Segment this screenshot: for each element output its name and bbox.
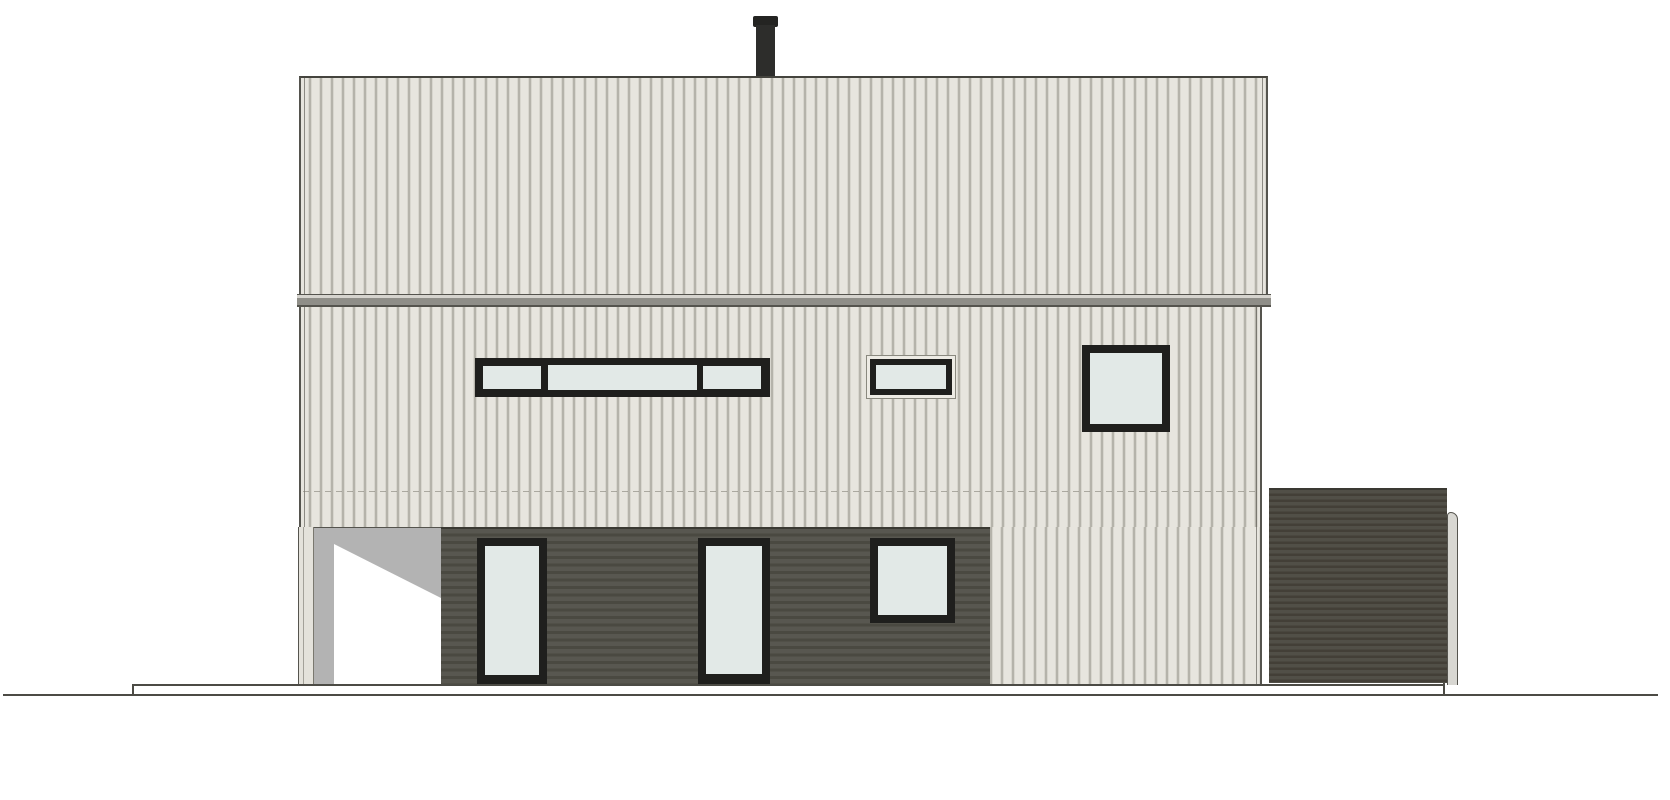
recess-light-area [314,528,441,685]
square-window-lower [870,538,955,623]
downpipe [1447,512,1458,685]
glass-door-left-pane [485,546,539,675]
upper-gable-wall [299,76,1268,294]
ribbon-window [475,358,770,397]
lower-right-wall [990,527,1262,685]
ground-line [3,694,1658,696]
square-window-upper-pane [1090,353,1162,424]
entrance-recess [314,527,441,685]
siding-joint-line [303,491,1258,492]
elevation-drawing [0,0,1670,800]
corner-post [298,527,314,685]
glass-door-right [698,538,770,684]
glass-door-right-pane [706,546,762,674]
vent-window-trim [866,355,956,399]
vent-window [870,359,952,395]
annex-block [1269,488,1447,683]
square-window-lower-pane [878,546,947,615]
glass-door-left [477,538,547,685]
foundation-slab-line [132,684,1443,686]
eave-band [297,294,1271,307]
vent-window-pane [876,365,946,389]
ribbon-window-pane-right [703,366,761,389]
ribbon-window-pane-middle [548,365,697,390]
square-window-upper [1082,345,1170,432]
ribbon-window-pane-left [483,366,541,389]
